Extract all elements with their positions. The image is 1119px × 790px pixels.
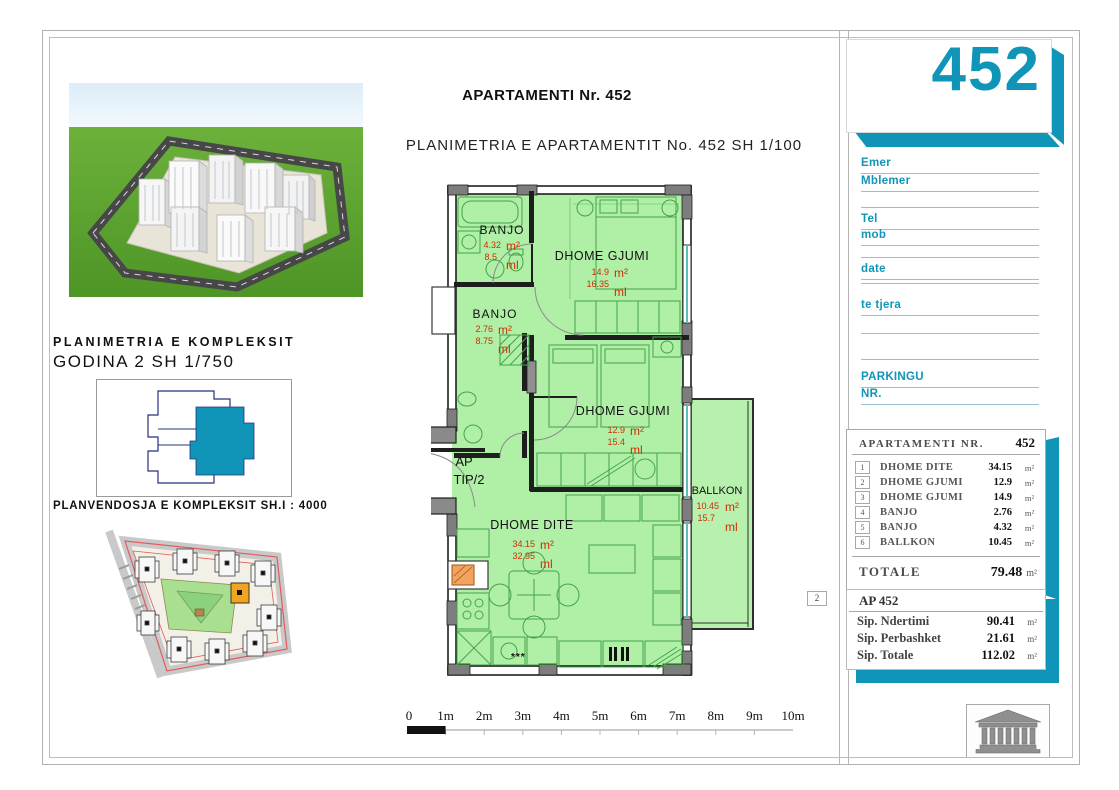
scale-labels: 0 1m 2m 3m 4m 5m 6m 7m 8m 9m 10m <box>406 708 805 723</box>
form-blank-line <box>861 257 1039 258</box>
total-value: 79.48 <box>991 565 1023 581</box>
bedroom-1-perim: 16.35 <box>586 279 609 289</box>
page-subtitle: PLANIMETRIA E APARTAMENTIT No. 452 SH 1/… <box>379 137 829 154</box>
bedroom-2-perim: 15.4 <box>607 437 625 447</box>
svg-text:9m: 9m <box>746 708 763 723</box>
site-plan-map <box>81 529 303 681</box>
panel-niche <box>448 561 488 589</box>
banjo-2-area-unit: m² <box>498 323 512 337</box>
entry-type-label-1: AP <box>455 454 472 469</box>
apartment-number: 452 <box>932 34 1041 105</box>
banner-ribbon-bottom <box>854 131 1060 147</box>
total-label: TOTALE <box>859 564 991 580</box>
rooms-table-number: 452 <box>1016 435 1036 451</box>
scale-bar: 0 1m 2m 3m 4m 5m 6m 7m 8m 9m 10m <box>401 707 813 741</box>
highlighted-unit <box>190 407 254 475</box>
form-field-mblemer: Mblemer <box>861 175 1039 192</box>
table-row: 6BALLKON10.45m² <box>852 535 1040 550</box>
bedroom-2-perim-unit: ml <box>630 443 643 457</box>
plan-sheet: APARTAMENTI Nr. 452 PLANIMETRIA E APARTA… <box>42 30 1080 765</box>
form-field-mob: mob <box>861 229 1039 246</box>
building-key-diagram <box>96 379 292 497</box>
form-blank-line <box>861 359 1039 360</box>
form-field-tel: Tel <box>861 213 1039 230</box>
svg-text:10m: 10m <box>781 708 804 723</box>
living-area: 34.15 <box>512 539 535 549</box>
svg-text:0: 0 <box>406 708 413 723</box>
svg-text:8m: 8m <box>707 708 724 723</box>
apartment-floor-plan: BANJO BANJO DHOME GJUMI DHOME GJUMI DHOM… <box>431 183 771 688</box>
table-row: Sip. Totale112.02m² <box>847 646 1045 663</box>
banjo-2-perim: 8.75 <box>475 336 493 346</box>
room-label-bedroom-1: DHOME GJUMI <box>555 249 649 263</box>
table-row: 5BANJO4.32m² <box>852 520 1040 535</box>
balcony-area-value: 10.45 <box>696 501 719 511</box>
table-row: 1DHOME DITE34.15m² <box>852 460 1040 475</box>
svg-text:5m: 5m <box>592 708 609 723</box>
banjo-2-area: 2.76 <box>475 324 493 334</box>
kompleks-subtitle: GODINA 2 SH 1/750 <box>53 352 333 372</box>
rooms-table-header: APARTAMENTI NR. <box>859 438 984 450</box>
living-area-unit: m² <box>540 538 554 552</box>
table-row: Sip. Perbashket21.61m² <box>847 629 1045 646</box>
bedroom-2-area-unit: m² <box>630 424 644 438</box>
banner-card: 452 <box>846 39 1052 133</box>
summary-index-box: 2 <box>807 591 827 606</box>
svg-text:6m: 6m <box>630 708 647 723</box>
balcony-perim-unit: ml <box>725 520 738 534</box>
room-label-banjo-1: BANJO <box>479 223 524 237</box>
room-label-banjo-2: BANJO <box>472 307 517 321</box>
form-field-date: date <box>861 263 1039 280</box>
balcony-area-unit: m² <box>725 500 739 514</box>
bedroom-2-area: 12.9 <box>607 425 625 435</box>
planvendosja-label: PLANVENDOSJA E KOMPLEKSIT SH.I : 4000 <box>53 500 353 512</box>
form-blank-line <box>861 333 1039 334</box>
rooms-area-table: APARTAMENTI NR. 452 1DHOME DITE34.15m² 2… <box>846 429 1046 590</box>
table-row: 3DHOME GJUMI14.9m² <box>852 490 1040 505</box>
living-perim-unit: ml <box>540 557 553 571</box>
room-label-bedroom-2: DHOME GJUMI <box>576 404 670 418</box>
banjo-1-area: 4.32 <box>483 240 501 250</box>
banjo-1-perim: 8.5 <box>484 252 497 262</box>
windows <box>683 245 691 617</box>
svg-text:7m: 7m <box>669 708 686 723</box>
kompleks-title-block: PLANIMETRIA E KOMPLEKSIT GODINA 2 SH 1/7… <box>53 335 333 372</box>
form-field-parkingu: PARKINGU <box>861 371 1039 388</box>
summary-title: AP 452 <box>849 590 1043 612</box>
form-blank-line <box>861 283 1039 284</box>
banjo-1-perim-unit: ml <box>506 258 519 272</box>
svg-text:3m: 3m <box>514 708 531 723</box>
scale-bar-solid <box>407 726 446 734</box>
form-field-te-tjera: te tjera <box>861 299 1039 316</box>
table-row: 2DHOME GJUMI12.9m² <box>852 475 1040 490</box>
bedroom-1-perim-unit: ml <box>614 285 627 299</box>
page-title: APARTAMENTI Nr. 452 <box>397 87 697 104</box>
table-row: 4BANJO2.76m² <box>852 505 1040 520</box>
form-blank-line <box>861 207 1039 208</box>
room-label-living: DHOME DITE <box>490 518 573 532</box>
room-label-balcony: BALLKON <box>692 485 743 497</box>
table-ribbon <box>1045 437 1059 600</box>
form-field-parking-nr: NR. <box>861 388 1039 405</box>
table-row: Sip. Ndertimi90.41m² <box>847 612 1045 629</box>
svg-text:2m: 2m <box>476 708 493 723</box>
balcony-perim: 15.7 <box>697 513 715 523</box>
temple-logo-icon <box>966 704 1050 758</box>
apartment-number-banner: 452 <box>846 39 1066 149</box>
entry-type-label-2: TIP/2 <box>453 472 484 487</box>
kompleks-title: PLANIMETRIA E KOMPLEKSIT <box>53 335 333 349</box>
page-canvas: APARTAMENTI Nr. 452 PLANIMETRIA E APARTA… <box>0 0 1119 790</box>
banjo-2-perim-unit: ml <box>498 342 511 356</box>
form-field-emer: Emer <box>861 157 1039 174</box>
total-unit: m² <box>1026 568 1037 579</box>
apartment-interior <box>452 191 686 671</box>
shaft-niche <box>432 287 455 334</box>
living-perim: 32.95 <box>512 551 535 561</box>
banjo-1-area-unit: m² <box>506 239 520 253</box>
bedroom-1-area: 14.9 <box>591 267 609 277</box>
bedroom-1-area-unit: m² <box>614 266 628 280</box>
summary-table: AP 452 Sip. Ndertimi90.41m² Sip. Perbash… <box>846 589 1046 670</box>
hood-stars: *** <box>511 652 526 663</box>
highlighted-building <box>231 583 249 603</box>
svg-text:1m: 1m <box>437 708 454 723</box>
svg-text:4m: 4m <box>553 708 570 723</box>
complex-3d-render <box>69 83 363 297</box>
